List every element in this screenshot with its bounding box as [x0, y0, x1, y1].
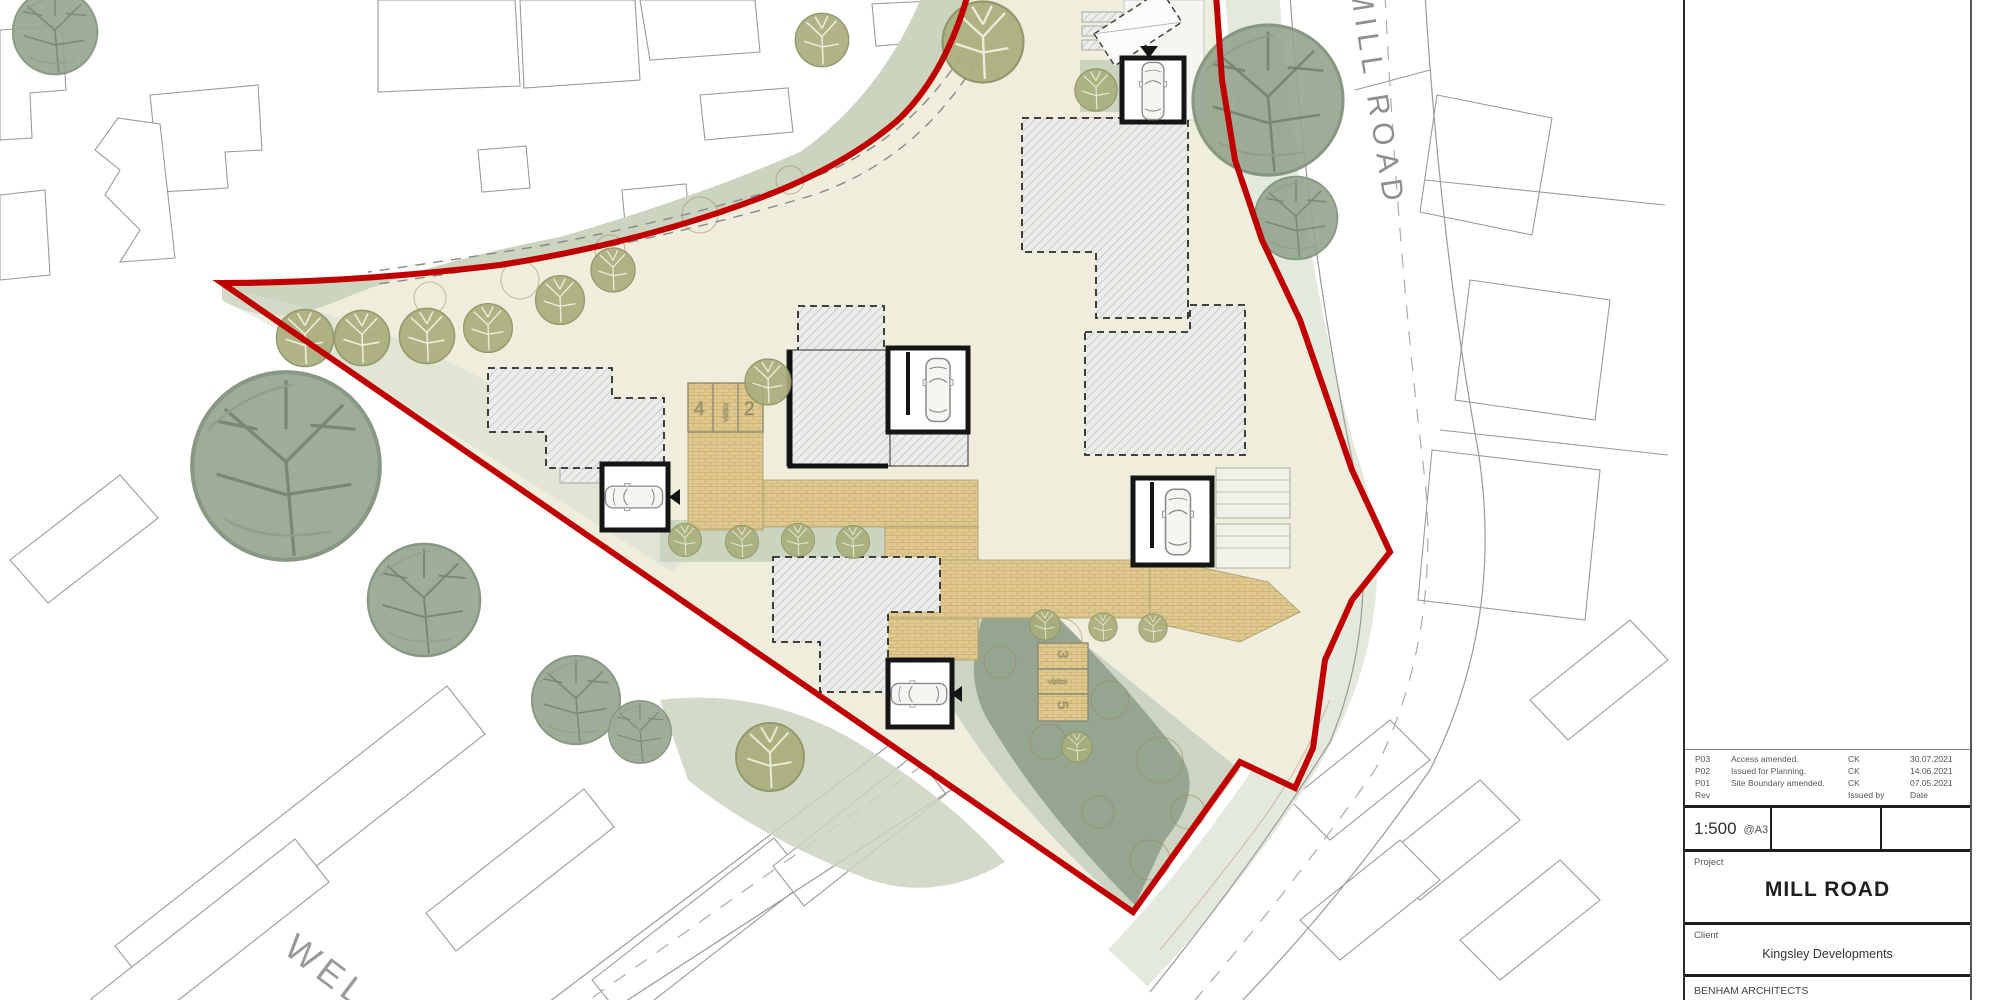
revision-issued-by: CK — [1848, 765, 1910, 777]
house-centre-upper — [798, 306, 884, 352]
project-row: Project MILL ROAD — [1685, 852, 1970, 925]
bay-label: 3 — [1054, 650, 1071, 658]
house-centre-rear — [890, 432, 968, 466]
bay-label: 2 — [744, 399, 755, 420]
revision-table: P03 Access amended. CK 30.07.2021 P02 Is… — [1685, 749, 1970, 808]
bay-label: 5 — [1054, 701, 1071, 709]
revision-row: P01 Site Boundary amended. CK 07.05.2021 — [1685, 777, 1970, 789]
revision-header-date: Date — [1910, 789, 1970, 801]
project-label: Project — [1685, 852, 1970, 868]
revision-description: Access amended. — [1731, 753, 1848, 765]
garage-west — [602, 464, 680, 530]
garage-east — [1133, 478, 1212, 565]
revision-row: P02 Issued for Planning. CK 14.06.2021 — [1685, 765, 1970, 777]
bay-label: visitor — [1048, 677, 1068, 686]
revision-code: P01 — [1685, 777, 1731, 789]
garage-centre — [888, 348, 968, 432]
revision-header-row: Rev Issued by Date — [1685, 789, 1970, 801]
client-row: Client Kingsley Developments — [1685, 925, 1970, 977]
road-label-mill-road: MILL ROAD — [1343, 0, 1411, 210]
terrace — [1216, 468, 1290, 568]
revision-date: 14.06.2021 — [1910, 765, 1970, 777]
paper-size: @A3 — [1744, 824, 1769, 836]
garage-north — [1122, 46, 1184, 122]
revision-header-rev: Rev — [1685, 789, 1731, 801]
revision-code: P03 — [1685, 753, 1731, 765]
house-centre — [787, 350, 890, 466]
road-label-wel: WEL — [277, 926, 378, 1000]
revision-issued-by: CK — [1848, 753, 1910, 765]
project-name: MILL ROAD — [1685, 878, 1970, 902]
practice-name: BENHAM ARCHITECTS — [1685, 977, 1970, 1000]
site-plan-sheet: MILL ROAD WEL — [0, 0, 2000, 1000]
revision-date: 07.05.2021 — [1910, 777, 1970, 789]
bay-label: visitor — [721, 402, 730, 422]
client-label: Client — [1685, 925, 1970, 941]
client-name: Kingsley Developments — [1685, 947, 1970, 961]
garage-south — [888, 660, 962, 727]
scale-cell: 1:500 @A3 — [1685, 808, 1770, 849]
scale-row: 1:500 @A3 — [1685, 808, 1970, 852]
parking-court-se: 3 visitor 5 — [1038, 643, 1088, 721]
titleblock-empty-cell — [1770, 808, 1880, 849]
revision-code: P02 — [1685, 765, 1731, 777]
revision-row: P03 Access amended. CK 30.07.2021 — [1685, 753, 1970, 765]
drawing-scale: 1:500 — [1694, 819, 1737, 839]
revision-header-issued-by: Issued by — [1848, 789, 1910, 801]
revision-date: 30.07.2021 — [1910, 753, 1970, 765]
titleblock-empty-cell — [1880, 808, 1970, 849]
revision-issued-by: CK — [1848, 777, 1910, 789]
revision-description: Issued for Planning. — [1731, 765, 1848, 777]
title-block: P03 Access amended. CK 30.07.2021 P02 Is… — [1683, 0, 1972, 1000]
bay-label: 4 — [694, 399, 705, 420]
revision-description: Site Boundary amended. — [1731, 777, 1848, 789]
